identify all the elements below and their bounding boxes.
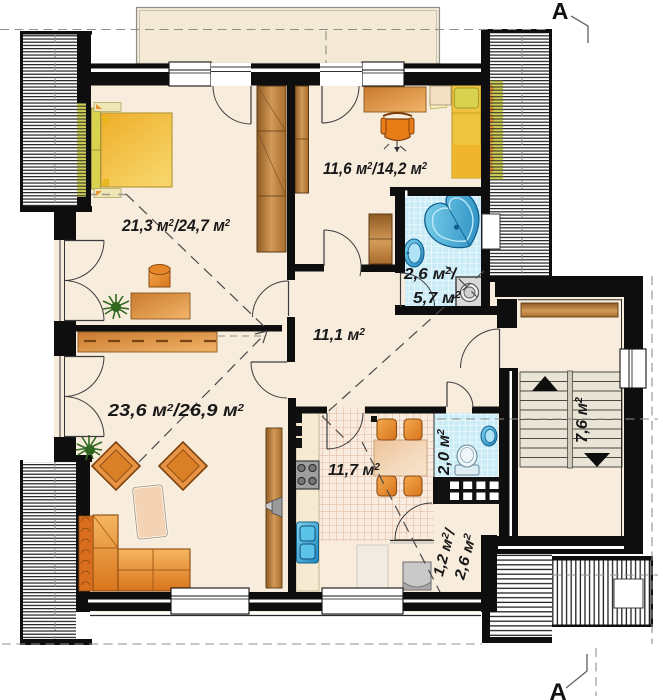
svg-text:23,6 м2/26,9 м2: 23,6 м2/26,9 м2 xyxy=(107,400,245,420)
svg-text:7,6 м2: 7,6 м2 xyxy=(574,397,592,443)
svg-text:A: A xyxy=(552,0,569,24)
svg-text:11,6 м2/14,2 м2: 11,6 м2/14,2 м2 xyxy=(323,159,427,178)
svg-text:A: A xyxy=(549,679,566,700)
svg-text:2,0 м2: 2,0 м2 xyxy=(436,429,454,477)
svg-text:21,3 м2/24,7 м2: 21,3 м2/24,7 м2 xyxy=(121,216,230,235)
svg-text:11,7 м2: 11,7 м2 xyxy=(328,462,380,480)
svg-text:11,1 м2: 11,1 м2 xyxy=(313,327,365,345)
svg-text:5,7 м2: 5,7 м2 xyxy=(413,290,461,308)
